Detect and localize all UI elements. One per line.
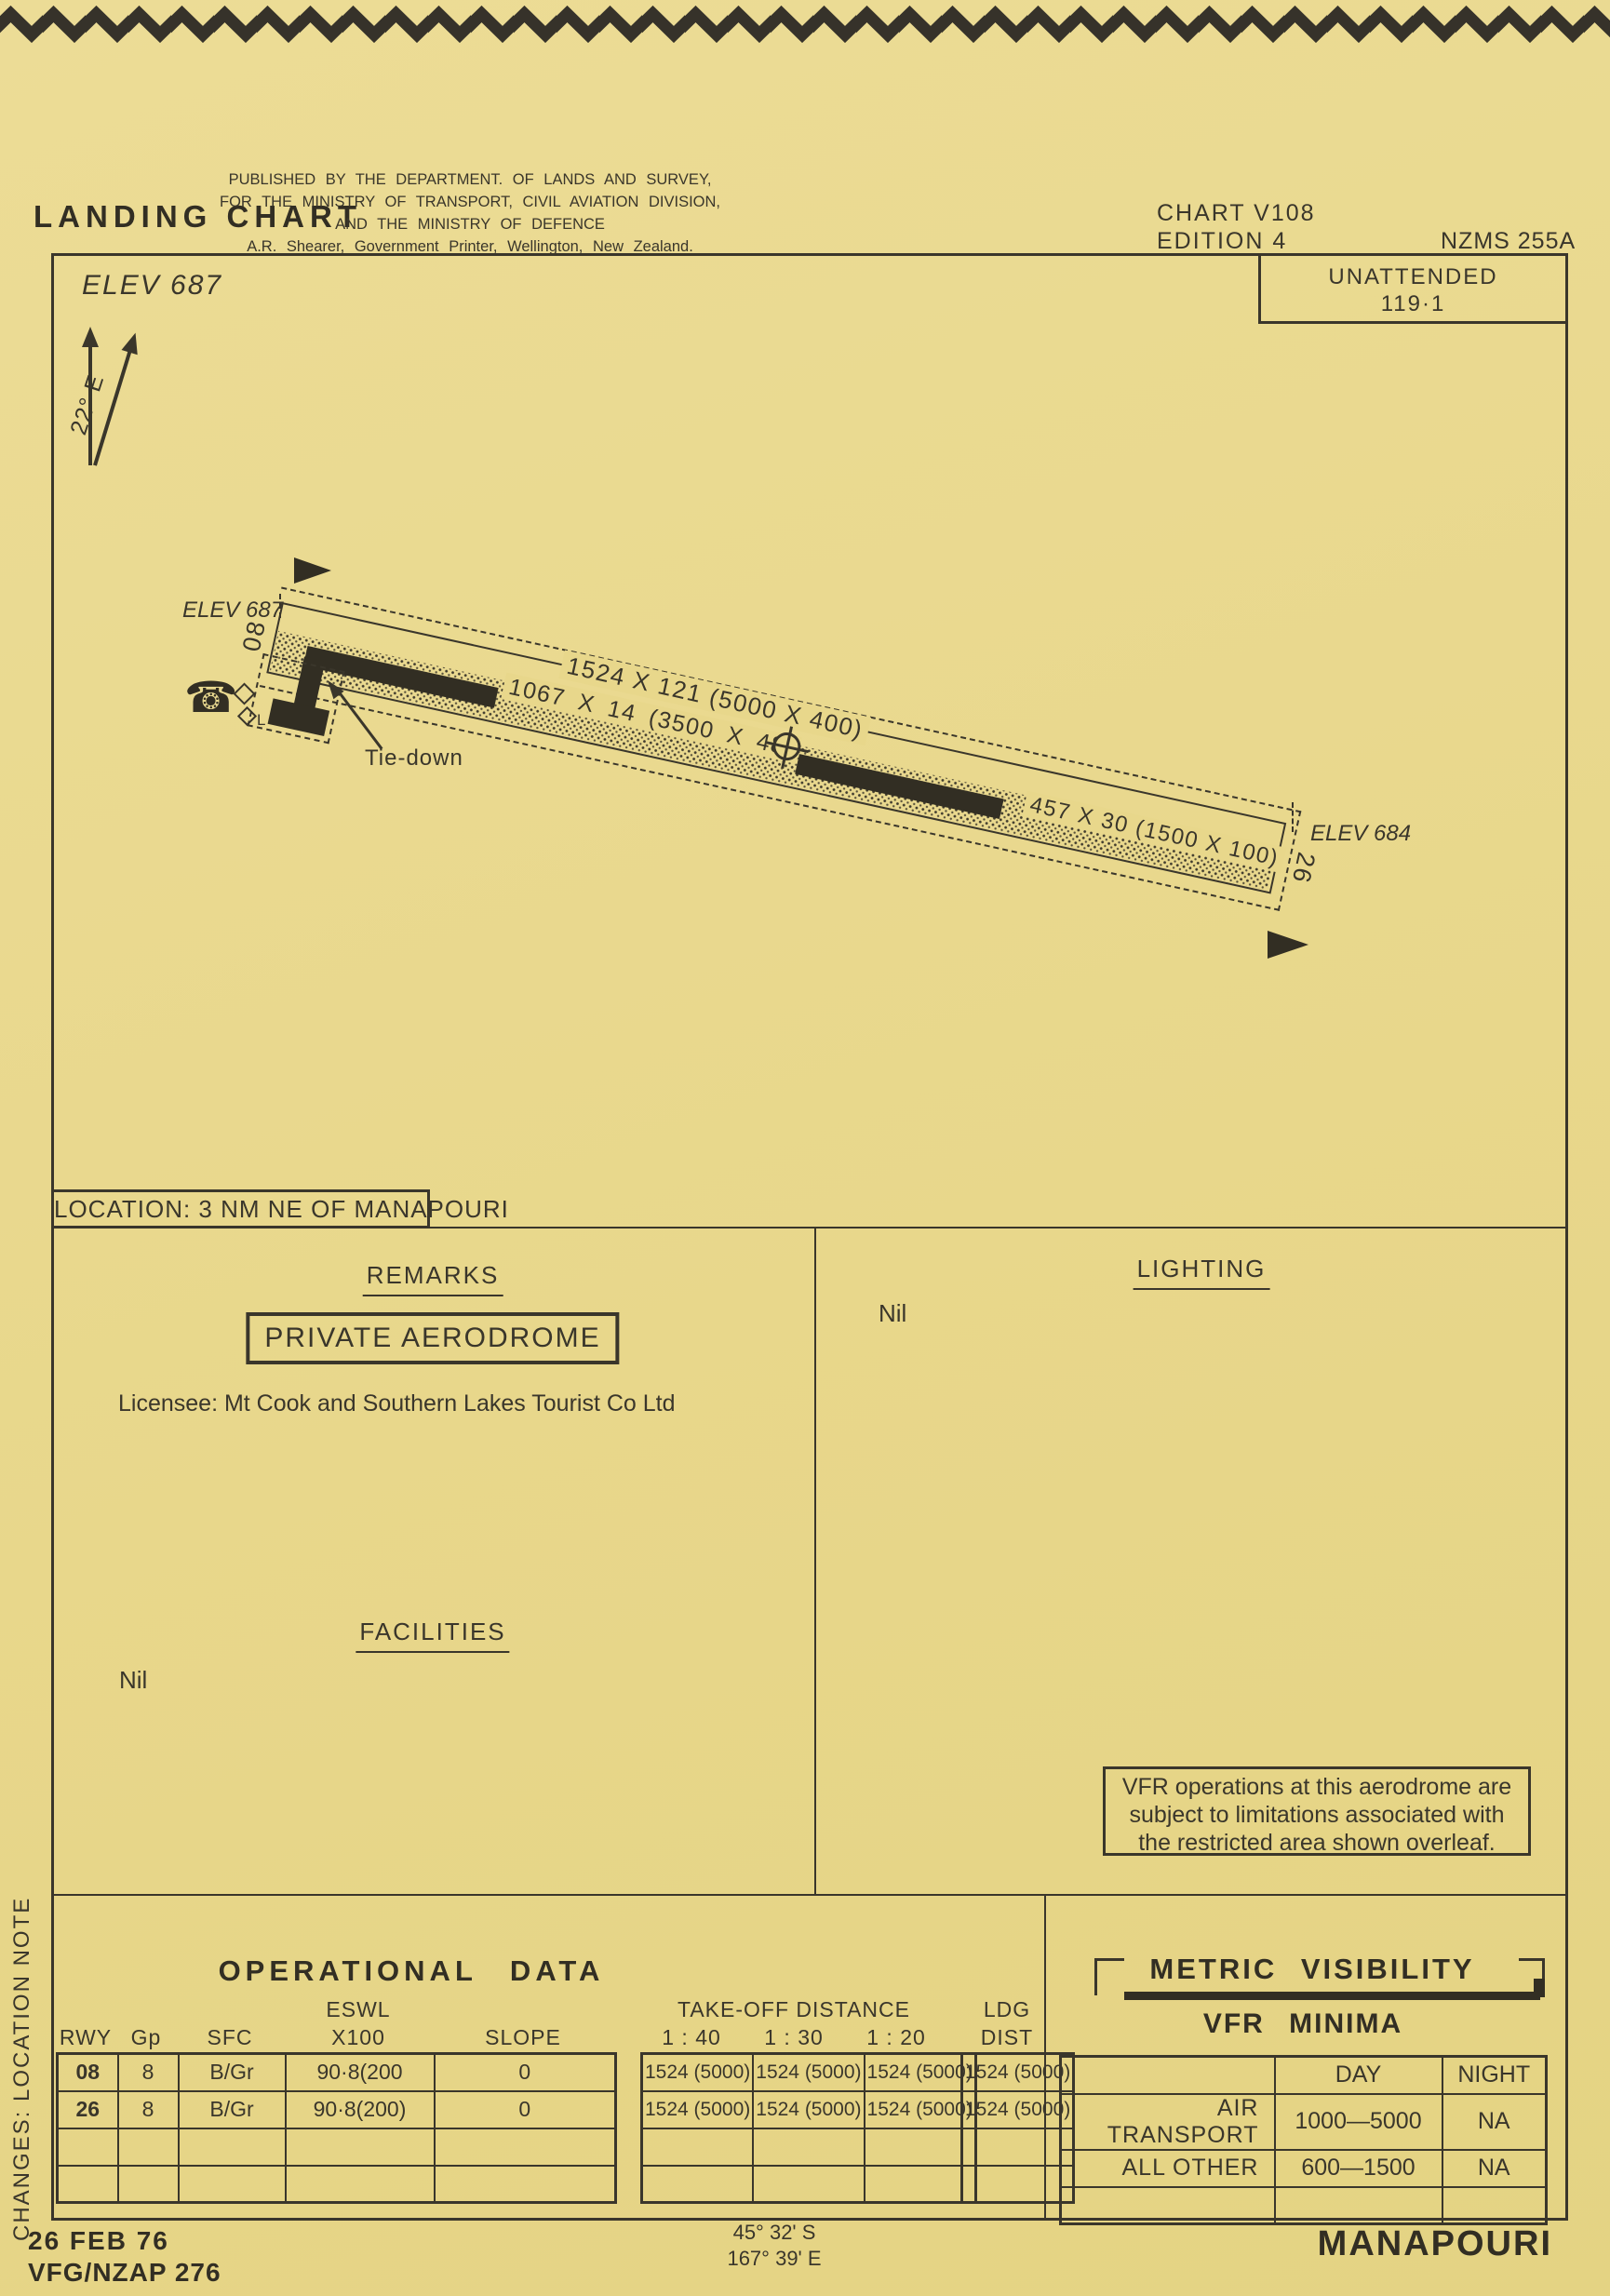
cell-category: ALL OTHER: [1061, 2150, 1275, 2187]
cell-day: 600—1500: [1275, 2150, 1442, 2187]
col-header-sfc: SFC: [208, 2025, 253, 2050]
zigzag-border: [0, 6, 1610, 45]
col-header-ldg: LDG: [984, 1997, 1030, 2022]
col-header-night: NIGHT: [1442, 2057, 1547, 2094]
landing-chart-page: LANDING CHART PUBLISHED BY THE DEPARTMEN…: [0, 0, 1610, 2296]
attendance-status: UNATTENDED: [1261, 263, 1565, 290]
metric-visibility-title: METRIC VISIBILITY: [1149, 1953, 1474, 1986]
vfr-note-line: the restricted area shown overleaf.: [1106, 1829, 1528, 1857]
section-divider-vertical: [814, 1227, 816, 1894]
table-row: 1524 (5000): [962, 2054, 1074, 2091]
threshold-tick-east: [1292, 802, 1294, 832]
publisher-line: AND THE MINISTRY OF DEFENCE: [195, 213, 745, 235]
cell-slope: 0: [435, 2091, 616, 2128]
attendance-frequency-box: UNATTENDED 119·1: [1258, 253, 1568, 324]
cell-slope: 0: [435, 2054, 616, 2091]
operational-data-table-takeoff: 1524 (5000) 1524 (5000) 1524 (5000) 1524…: [640, 2052, 977, 2204]
chart-reference: VFG/NZAP 276: [28, 2258, 221, 2288]
publisher-line: FOR THE MINISTRY OF TRANSPORT, CIVIL AVI…: [195, 191, 745, 213]
cell-gp: 8: [118, 2091, 179, 2128]
field-elevation: ELEV 687: [82, 270, 222, 302]
table-row-empty: [962, 2166, 1074, 2203]
col-header-slope: SLOPE: [485, 2025, 561, 2050]
publisher-imprint: PUBLISHED BY THE DEPARTMENT. OF LANDS AN…: [195, 168, 745, 258]
vfr-note-line: subject to limitations associated with: [1106, 1801, 1528, 1829]
threshold-elevation-east: ELEV 684: [1310, 821, 1411, 847]
longitude: 167° 39' E: [727, 2247, 821, 2271]
boundary-marker-label: L: [257, 711, 265, 730]
table-row: 08 8 B/Gr 90·8(200 0: [58, 2054, 616, 2091]
licensee-line: Licensee: Mt Cook and Southern Lakes Tou…: [118, 1390, 676, 1417]
col-header-takeoff-distance: TAKE-OFF DISTANCE: [678, 1997, 910, 2022]
section-divider-horizontal: [51, 1894, 1568, 1896]
chart-number: CHART V108: [1157, 200, 1316, 227]
lighting-heading: LIGHTING: [1134, 1255, 1270, 1290]
col-header-day: DAY: [1275, 2057, 1442, 2094]
threshold-tick-west: [279, 594, 281, 618]
changes-side-note: CHANGES: LOCATION NOTE: [9, 1897, 35, 2241]
col-header-x100: X100: [331, 2025, 385, 2050]
cell-night: NA: [1442, 2150, 1547, 2187]
section-divider-horizontal: [51, 1227, 1568, 1229]
table-header-row: DAY NIGHT: [1061, 2057, 1547, 2094]
latitude: 45° 32' S: [733, 2221, 816, 2245]
telephone-icon: ☎: [184, 672, 237, 722]
table-row: 1524 (5000) 1524 (5000) 1524 (5000): [642, 2091, 976, 2128]
facilities-heading: FACILITIES: [356, 1618, 509, 1653]
table-row: ALL OTHER 600—1500 NA: [1061, 2150, 1547, 2187]
table-row-empty: [642, 2166, 976, 2203]
col-header-dist: DIST: [981, 2025, 1033, 2050]
cell-category: AIR TRANSPORT: [1061, 2094, 1275, 2150]
cell-to20: 1524 (5000): [865, 2054, 976, 2091]
chart-date: 26 FEB 76: [28, 2226, 169, 2256]
cell-sfc: B/Gr: [179, 2054, 286, 2091]
table-row-empty: [58, 2166, 616, 2203]
radio-frequency: 119·1: [1261, 290, 1565, 317]
publisher-line: PUBLISHED BY THE DEPARTMENT. OF LANDS AN…: [195, 168, 745, 191]
table-row: 26 8 B/Gr 90·8(200) 0: [58, 2091, 616, 2128]
chart-edition: EDITION 4: [1157, 228, 1287, 255]
cell-to40: 1524 (5000): [642, 2054, 754, 2091]
vfr-limitations-note: VFR operations at this aerodrome are sub…: [1103, 1766, 1531, 1856]
cell-night: NA: [1442, 2094, 1547, 2150]
table-row-empty: [58, 2128, 616, 2166]
cell-sfc: B/Gr: [179, 2091, 286, 2128]
title-underline-bar: [1124, 1992, 1540, 2000]
cell-ldg: 1524 (5000): [962, 2054, 1074, 2091]
col-header-gp: Gp: [131, 2025, 162, 2050]
cell-to30: 1524 (5000): [753, 2054, 864, 2091]
cell-eswl: 90·8(200): [286, 2091, 435, 2128]
table-row-empty: [642, 2128, 976, 2166]
table-row-empty: [1061, 2187, 1547, 2224]
table-row: 1524 (5000): [962, 2091, 1074, 2128]
cell-eswl: 90·8(200: [286, 2054, 435, 2091]
lighting-value: Nil: [879, 1299, 906, 1328]
operational-data-title: OPERATIONAL DATA: [219, 1954, 605, 1988]
cell-day: 1000—5000: [1275, 2094, 1442, 2150]
vfr-minima-table: DAY NIGHT AIR TRANSPORT 1000—5000 NA ALL…: [1059, 2055, 1548, 2225]
cell-gp: 8: [118, 2054, 179, 2091]
vfr-note-line: VFR operations at this aerodrome are: [1106, 1773, 1528, 1801]
threshold-elevation-west: ELEV 687: [182, 597, 283, 624]
col-header-1-30: 1 : 30: [764, 2025, 824, 2050]
location-box: LOCATION: 3 NM NE OF MANAPOURI: [51, 1189, 430, 1229]
col-header-rwy: RWY: [60, 2025, 112, 2050]
col-header-eswl: ESWL: [326, 1997, 390, 2022]
table-row: 1524 (5000) 1524 (5000) 1524 (5000): [642, 2054, 976, 2091]
aerodrome-name: MANAPOURI: [1318, 2224, 1552, 2264]
private-aerodrome-box: PRIVATE AERODROME: [246, 1312, 619, 1364]
operational-data-table-ldg: 1524 (5000) 1524 (5000): [960, 2052, 1075, 2204]
table-row-empty: [962, 2128, 1074, 2166]
col-header-1-20: 1 : 20: [866, 2025, 926, 2050]
cell-rwy: 26: [58, 2091, 118, 2128]
cell-ldg: 1524 (5000): [962, 2091, 1074, 2128]
title-bracket-left: [1094, 1958, 1124, 1995]
cell-to30: 1524 (5000): [753, 2091, 864, 2128]
facilities-value: Nil: [119, 1666, 147, 1695]
cell-rwy: 08: [58, 2054, 118, 2091]
cell-to20: 1524 (5000): [865, 2091, 976, 2128]
operational-data-table-main: 08 8 B/Gr 90·8(200 0 26 8 B/Gr 90·8(200)…: [56, 2052, 617, 2204]
runway-end-marker-east-icon: [1268, 931, 1308, 959]
runway-end-marker-west-icon: [294, 557, 331, 584]
cell-to40: 1524 (5000): [642, 2091, 754, 2128]
table-row: AIR TRANSPORT 1000—5000 NA: [1061, 2094, 1547, 2150]
vfr-minima-subtitle: VFR MINIMA: [1203, 2008, 1402, 2040]
chart-border: [51, 253, 1568, 2221]
remarks-heading: REMARKS: [363, 1261, 503, 1296]
col-header-1-40: 1 : 40: [662, 2025, 721, 2050]
map-series-number: NZMS 255A: [1441, 228, 1576, 255]
